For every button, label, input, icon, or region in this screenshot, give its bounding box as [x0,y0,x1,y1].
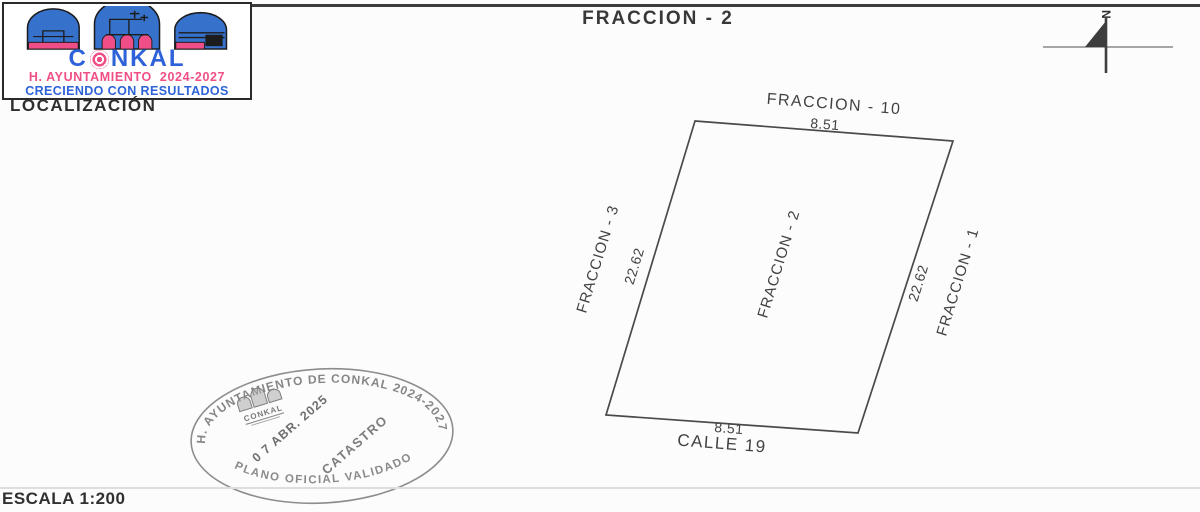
dimension-top: 8.51 [810,115,840,133]
bottom-faint-rule [0,487,1200,489]
scale-label: ESCALA 1:200 [2,489,125,509]
official-stamp: H. AYUNTAMIENTO DE CONKAL 2024-2027 PLAN… [185,362,460,512]
scanned-cadastral-plan: { "page": { "title": "FRACCION - 2", "sc… [0,0,1200,507]
